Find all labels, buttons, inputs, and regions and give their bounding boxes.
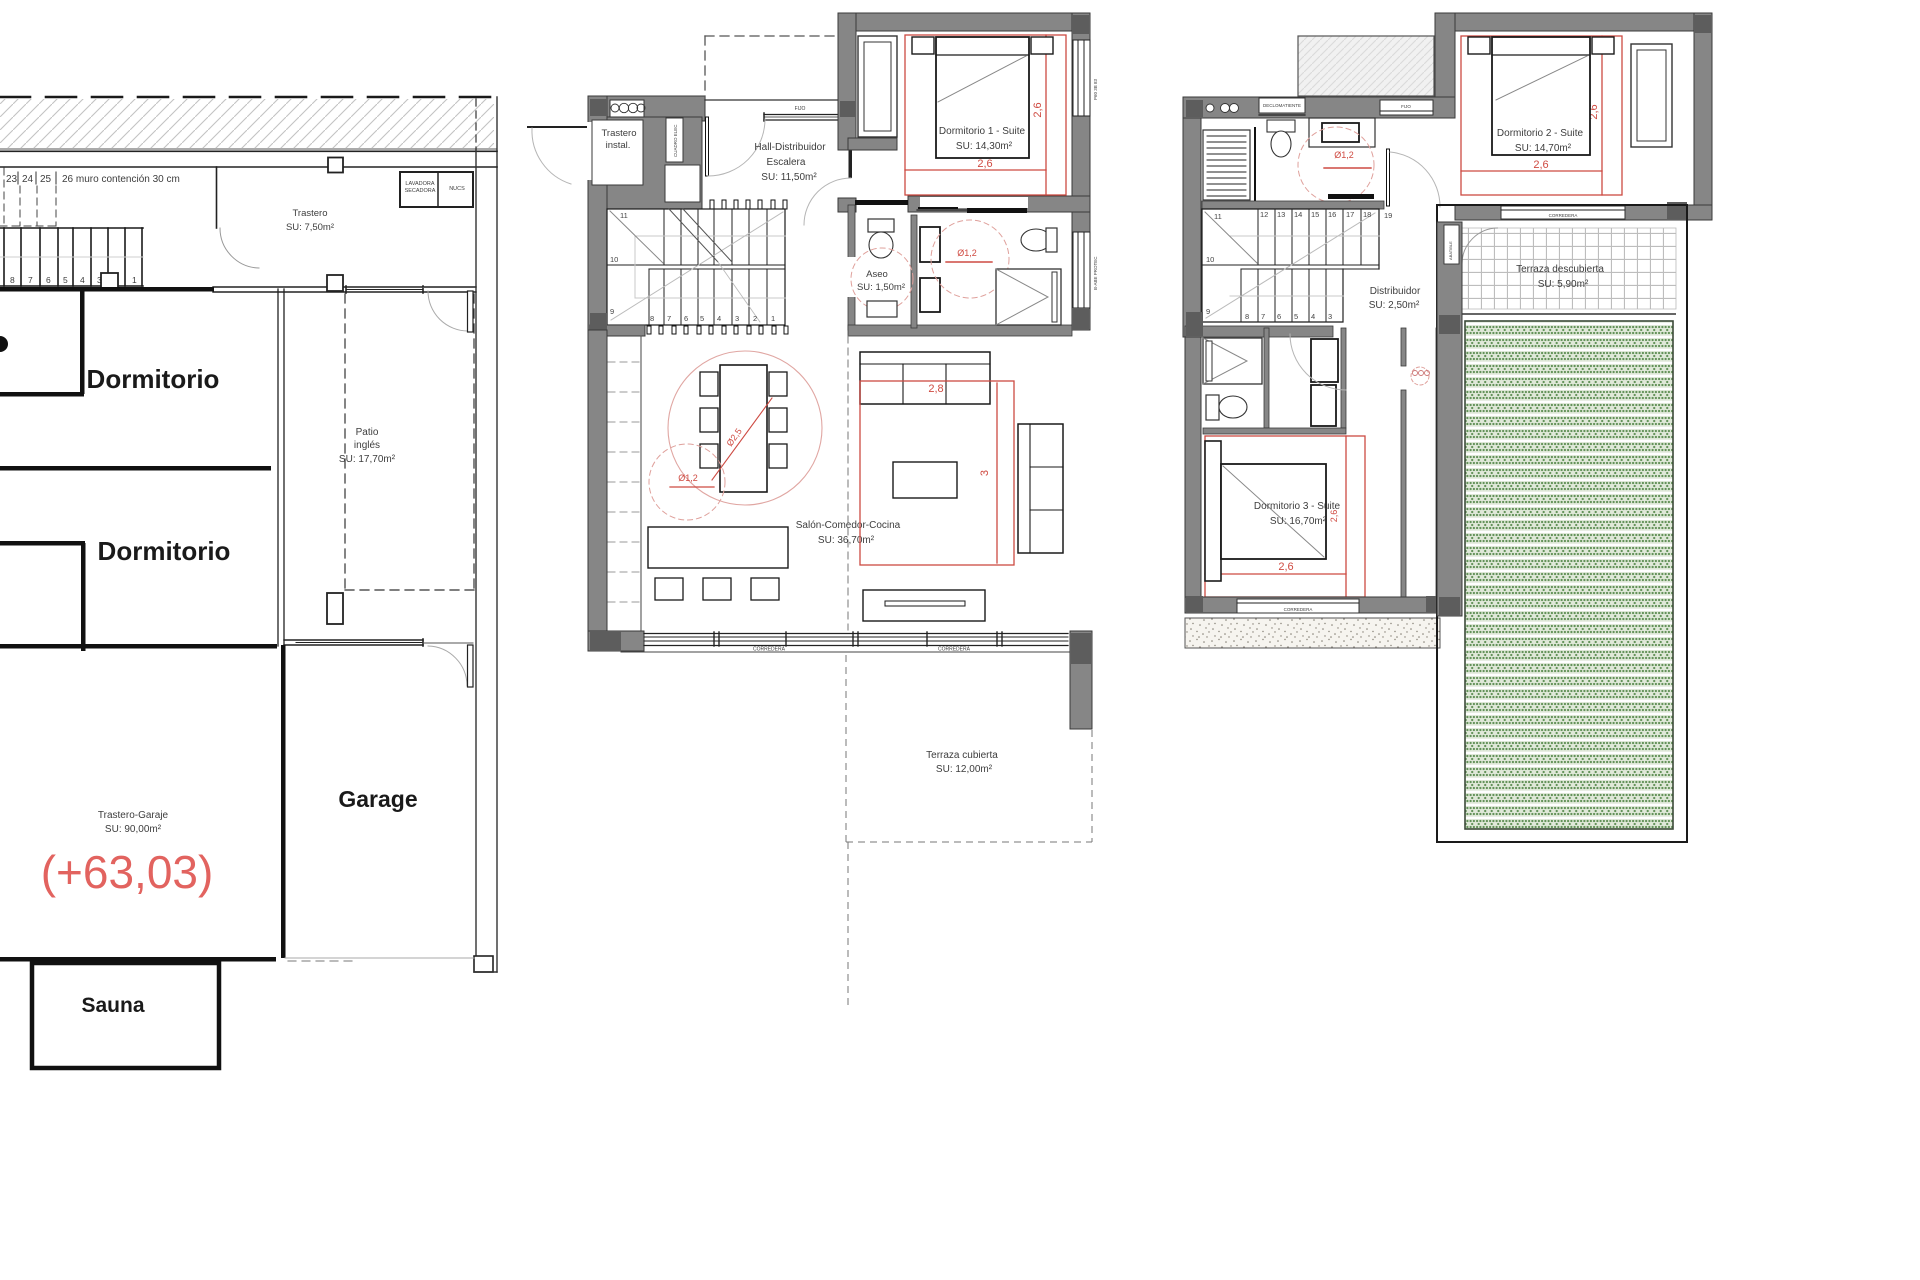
svg-text:25: 25 [40,174,52,185]
svg-text:1: 1 [132,275,137,285]
svg-text:3: 3 [735,314,739,323]
svg-text:inglés: inglés [354,440,380,451]
svg-text:16: 16 [1328,210,1336,219]
svg-text:Aseo: Aseo [866,269,888,280]
svg-text:(+63,03): (+63,03) [41,846,214,898]
svg-text:6: 6 [1277,312,1281,321]
svg-text:2,6: 2,6 [1032,102,1044,117]
svg-text:Dormitorio: Dormitorio [87,364,220,394]
svg-text:SU: 5,90m²: SU: 5,90m² [1538,279,1589,290]
svg-text:Sauna: Sauna [81,994,144,1017]
svg-text:FIJO: FIJO [795,106,806,112]
svg-text:Trastero-Garaje: Trastero-Garaje [98,810,169,821]
svg-text:10: 10 [1206,255,1214,264]
svg-text:Dormitorio 2 - Suite: Dormitorio 2 - Suite [1497,128,1584,139]
svg-text:8: 8 [650,314,654,323]
svg-text:SU: 36,70m²: SU: 36,70m² [818,535,875,546]
svg-text:SU: 1,50m²: SU: 1,50m² [857,282,905,293]
svg-text:Dormitorio 3 - Suite: Dormitorio 3 - Suite [1254,501,1341,512]
svg-text:Terraza descubierta: Terraza descubierta [1516,264,1604,275]
svg-text:LAVADORA: LAVADORA [405,181,434,187]
svg-text:26 muro contención 30 cm: 26 muro contención 30 cm [62,174,180,185]
svg-text:SU: 2,50m²: SU: 2,50m² [1369,300,1420,311]
svg-text:Dormitorio: Dormitorio [98,536,231,566]
svg-text:Ø1,2: Ø1,2 [1334,150,1354,160]
svg-text:NUCS: NUCS [449,186,465,192]
svg-text:9: 9 [610,307,614,316]
svg-text:SU: 11,50m²: SU: 11,50m² [761,172,817,183]
svg-text:instal.: instal. [606,140,631,151]
svg-text:18: 18 [1363,210,1371,219]
svg-text:Terraza cubierta: Terraza cubierta [926,750,998,761]
svg-text:14: 14 [1294,210,1302,219]
svg-text:CORREDERA: CORREDERA [753,647,786,653]
svg-text:SU: 16,70m²: SU: 16,70m² [1270,516,1327,527]
svg-text:2,6: 2,6 [977,158,992,170]
svg-text:Salón-Comedor-Cocina: Salón-Comedor-Cocina [796,520,901,531]
svg-text:5: 5 [700,314,704,323]
svg-text:4: 4 [1311,312,1315,321]
svg-text:Garage: Garage [338,786,417,812]
svg-text:2,6: 2,6 [1278,561,1293,573]
svg-text:3: 3 [979,470,991,476]
svg-text:Patio: Patio [356,427,379,438]
svg-text:3: 3 [1328,312,1332,321]
svg-text:B-ABE PROTEC: B-ABE PROTEC [1093,256,1098,290]
svg-text:5: 5 [63,275,68,285]
svg-text:15: 15 [1311,210,1319,219]
svg-text:7: 7 [1261,312,1265,321]
svg-text:7: 7 [667,314,671,323]
svg-text:2: 2 [753,314,757,323]
svg-text:Dormitorio 1 - Suite: Dormitorio 1 - Suite [939,126,1026,137]
svg-text:24: 24 [22,174,34,185]
svg-text:1: 1 [771,314,775,323]
svg-text:SU: 17,70m²: SU: 17,70m² [339,454,396,465]
svg-text:CORREDERA: CORREDERA [938,647,971,653]
svg-text:Trastero: Trastero [292,208,327,219]
svg-text:FIJO: FIJO [1401,104,1411,109]
svg-text:13: 13 [1277,210,1285,219]
svg-text:SU: 7,50m²: SU: 7,50m² [286,222,334,233]
svg-text:P60 3B 83: P60 3B 83 [1093,78,1098,100]
svg-text:CUADRO ELEC: CUADRO ELEC [673,124,678,157]
svg-text:10: 10 [610,255,618,264]
svg-text:6: 6 [684,314,688,323]
svg-text:7: 7 [28,275,33,285]
svg-text:SU: 12,00m²: SU: 12,00m² [936,764,993,775]
svg-text:9: 9 [1206,307,1210,316]
svg-text:Hall-Distribuidor: Hall-Distribuidor [754,142,826,153]
svg-text:4: 4 [80,275,85,285]
svg-text:17: 17 [1346,210,1354,219]
svg-text:SU: 90,00m²: SU: 90,00m² [105,824,162,835]
svg-text:4: 4 [717,314,721,323]
svg-text:Ø1,2: Ø1,2 [957,248,977,258]
svg-text:SECADORA: SECADORA [405,188,436,194]
svg-text:23: 23 [6,174,18,185]
svg-text:19: 19 [1384,211,1392,220]
svg-text:12: 12 [1260,210,1268,219]
svg-text:Distribuidor: Distribuidor [1370,286,1421,297]
svg-text:Trastero: Trastero [601,128,636,139]
svg-text:11: 11 [1214,212,1222,221]
svg-text:5: 5 [1294,312,1298,321]
svg-text:SU: 14,30m²: SU: 14,30m² [956,141,1013,152]
svg-text:SU: 14,70m²: SU: 14,70m² [1515,143,1572,154]
svg-text:DECLOMATIENTE: DECLOMATIENTE [1263,103,1301,108]
svg-text:Ø1,2: Ø1,2 [678,473,698,483]
svg-text:2,8: 2,8 [928,383,943,395]
svg-text:ABATIBLE: ABATIBLE [1448,241,1453,260]
svg-text:Escalera: Escalera [767,157,806,168]
svg-text:11: 11 [620,211,628,220]
svg-text:2,6: 2,6 [1533,159,1548,171]
svg-text:8: 8 [10,275,15,285]
svg-text:CORREDERA: CORREDERA [1549,213,1578,218]
svg-text:8: 8 [1245,312,1249,321]
svg-text:6: 6 [46,275,51,285]
svg-text:CORREDERA: CORREDERA [1284,607,1313,612]
